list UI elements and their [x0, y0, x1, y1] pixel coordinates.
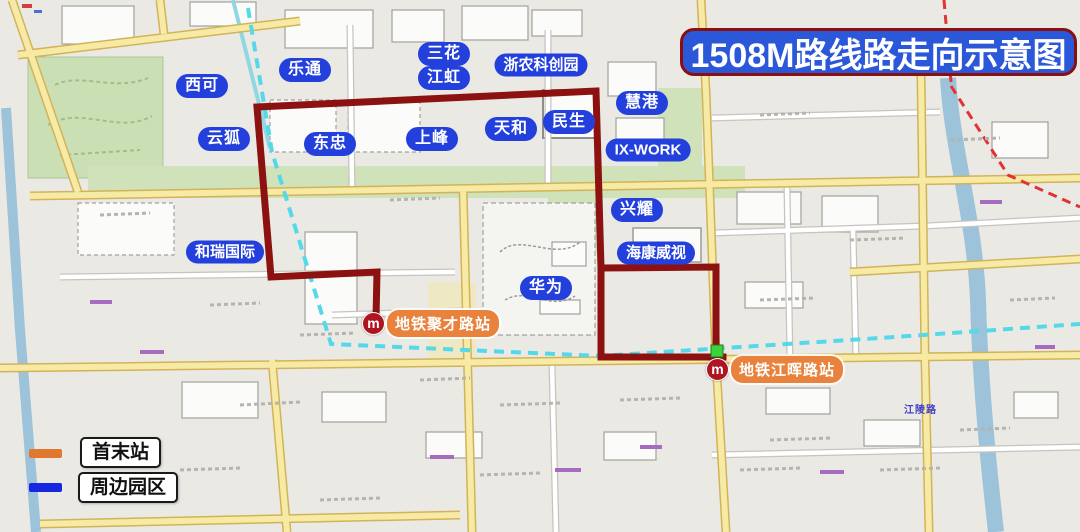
legend-terminal-label: 首末站 [80, 437, 161, 468]
map-canvas [0, 0, 1080, 532]
area-label-huawei: 华为 [520, 276, 572, 300]
metro-station-jucai-road: m 地铁聚才路站 [362, 310, 499, 337]
road-label-jiangling: 江陵路 [904, 401, 937, 416]
area-label-dongzhong: 东忠 [304, 132, 356, 156]
legend-terminal-bar [29, 449, 62, 458]
area-label-hikvision: 海康威视 [617, 242, 695, 265]
area-label-yunhu: 云狐 [198, 127, 250, 151]
area-label-jianghong: 江虹 [418, 66, 470, 90]
area-label-xingyao: 兴耀 [611, 198, 663, 222]
area-label-ix-work: IX-WORK [606, 139, 691, 162]
area-label-zhenong-park: 浙农科创园 [494, 54, 587, 77]
area-label-herui-intl: 和瑞国际 [186, 241, 264, 264]
metro-logo-icon: m [362, 312, 385, 335]
legend-park-label: 周边园区 [78, 472, 178, 503]
route-map: 西可 乐通 三花 江虹 云狐 东忠 上峰 天和 民生 浙农科创园 慧港 IX-W… [0, 0, 1080, 532]
area-label-shangfeng: 上峰 [406, 127, 458, 151]
area-label-huigang: 慧港 [616, 91, 668, 115]
area-label-xike: 西可 [176, 74, 228, 98]
area-label-sanhua: 三花 [418, 42, 470, 66]
area-label-minsheng: 民生 [543, 110, 595, 134]
metro-station-jianghui-road: m 地铁江晖路站 [706, 356, 843, 383]
metro-logo-icon: m [706, 358, 729, 381]
area-label-tianhe: 天和 [485, 117, 537, 141]
legend-park-bar [29, 483, 62, 492]
station-name-jianghui: 地铁江晖路站 [731, 356, 843, 383]
map-title: 1508M路线路走向示意图 [680, 28, 1077, 76]
area-label-letong: 乐通 [279, 58, 331, 82]
station-name-jucai: 地铁聚才路站 [387, 310, 499, 337]
